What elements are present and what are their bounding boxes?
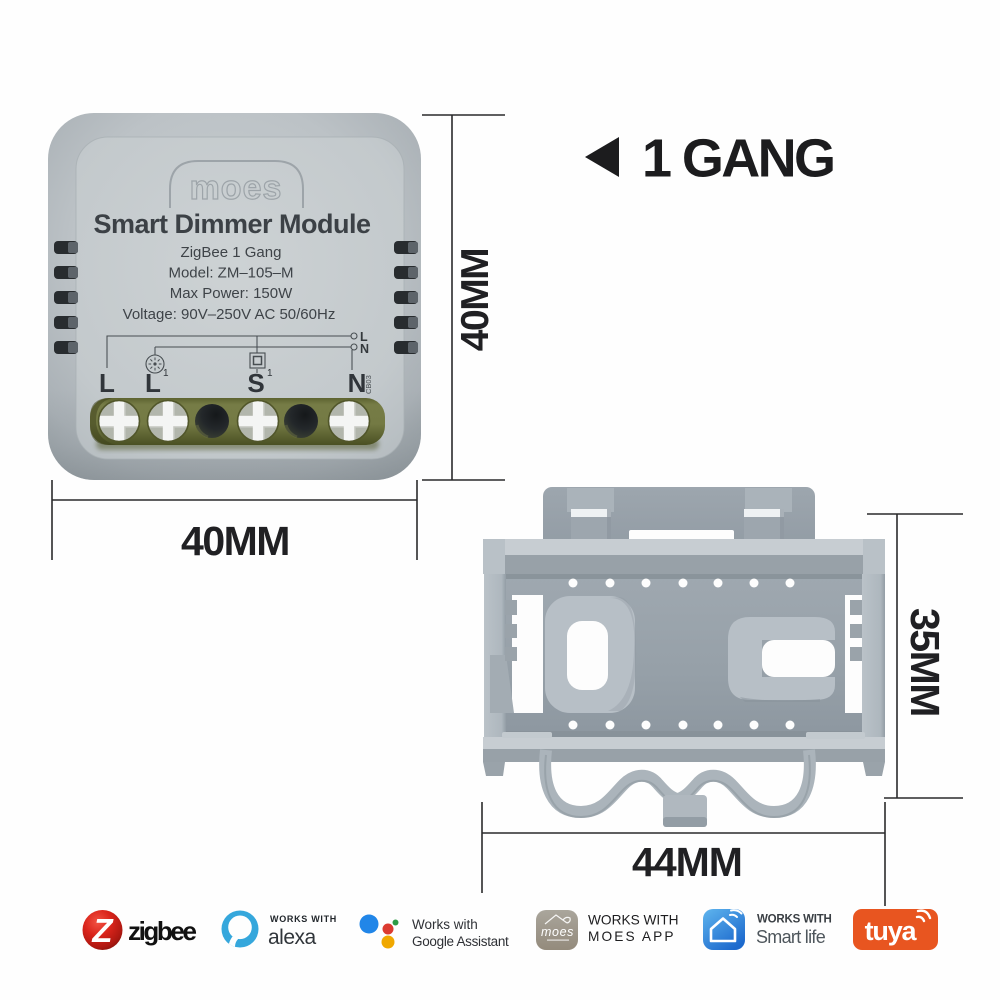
svg-text:moes: moes xyxy=(190,169,283,207)
svg-text:MOES APP: MOES APP xyxy=(588,929,676,944)
svg-text:40MM: 40MM xyxy=(181,518,289,564)
svg-text:1 GANG: 1 GANG xyxy=(642,129,833,189)
svg-text:Smart Dimmer Module: Smart Dimmer Module xyxy=(93,209,371,239)
svg-text:S: S xyxy=(247,368,264,398)
svg-text:N: N xyxy=(360,342,369,356)
svg-text:Google Assistant: Google Assistant xyxy=(412,934,509,949)
svg-text:WORKS WITH: WORKS WITH xyxy=(270,914,337,924)
svg-text:CB03: CB03 xyxy=(364,375,373,394)
svg-text:1: 1 xyxy=(267,368,273,379)
svg-text:1: 1 xyxy=(163,368,169,379)
svg-text:40MM: 40MM xyxy=(454,249,497,351)
svg-text:zigbee: zigbee xyxy=(128,916,196,946)
svg-text:Model: ZM–105–M: Model: ZM–105–M xyxy=(168,265,293,282)
svg-text:ZigBee 1 Gang: ZigBee 1 Gang xyxy=(181,244,282,261)
svg-text:Works with: Works with xyxy=(412,917,478,932)
svg-text:moes: moes xyxy=(541,925,574,939)
svg-text:Voltage: 90V–250V AC 50/60Hz: Voltage: 90V–250V AC 50/60Hz xyxy=(123,306,336,323)
svg-text:44MM: 44MM xyxy=(632,839,742,885)
svg-text:WORKS WITH: WORKS WITH xyxy=(757,914,832,926)
svg-text:Smart life: Smart life xyxy=(756,927,826,947)
svg-text:alexa: alexa xyxy=(268,926,317,949)
svg-text:L: L xyxy=(99,368,115,398)
svg-text:WORKS WITH: WORKS WITH xyxy=(588,913,678,928)
svg-text:Max Power: 150W: Max Power: 150W xyxy=(170,285,293,302)
svg-text:L: L xyxy=(145,368,161,398)
svg-text:35MM: 35MM xyxy=(902,608,948,716)
svg-text:Z: Z xyxy=(91,912,114,949)
svg-text:tuya: tuya xyxy=(865,916,918,946)
